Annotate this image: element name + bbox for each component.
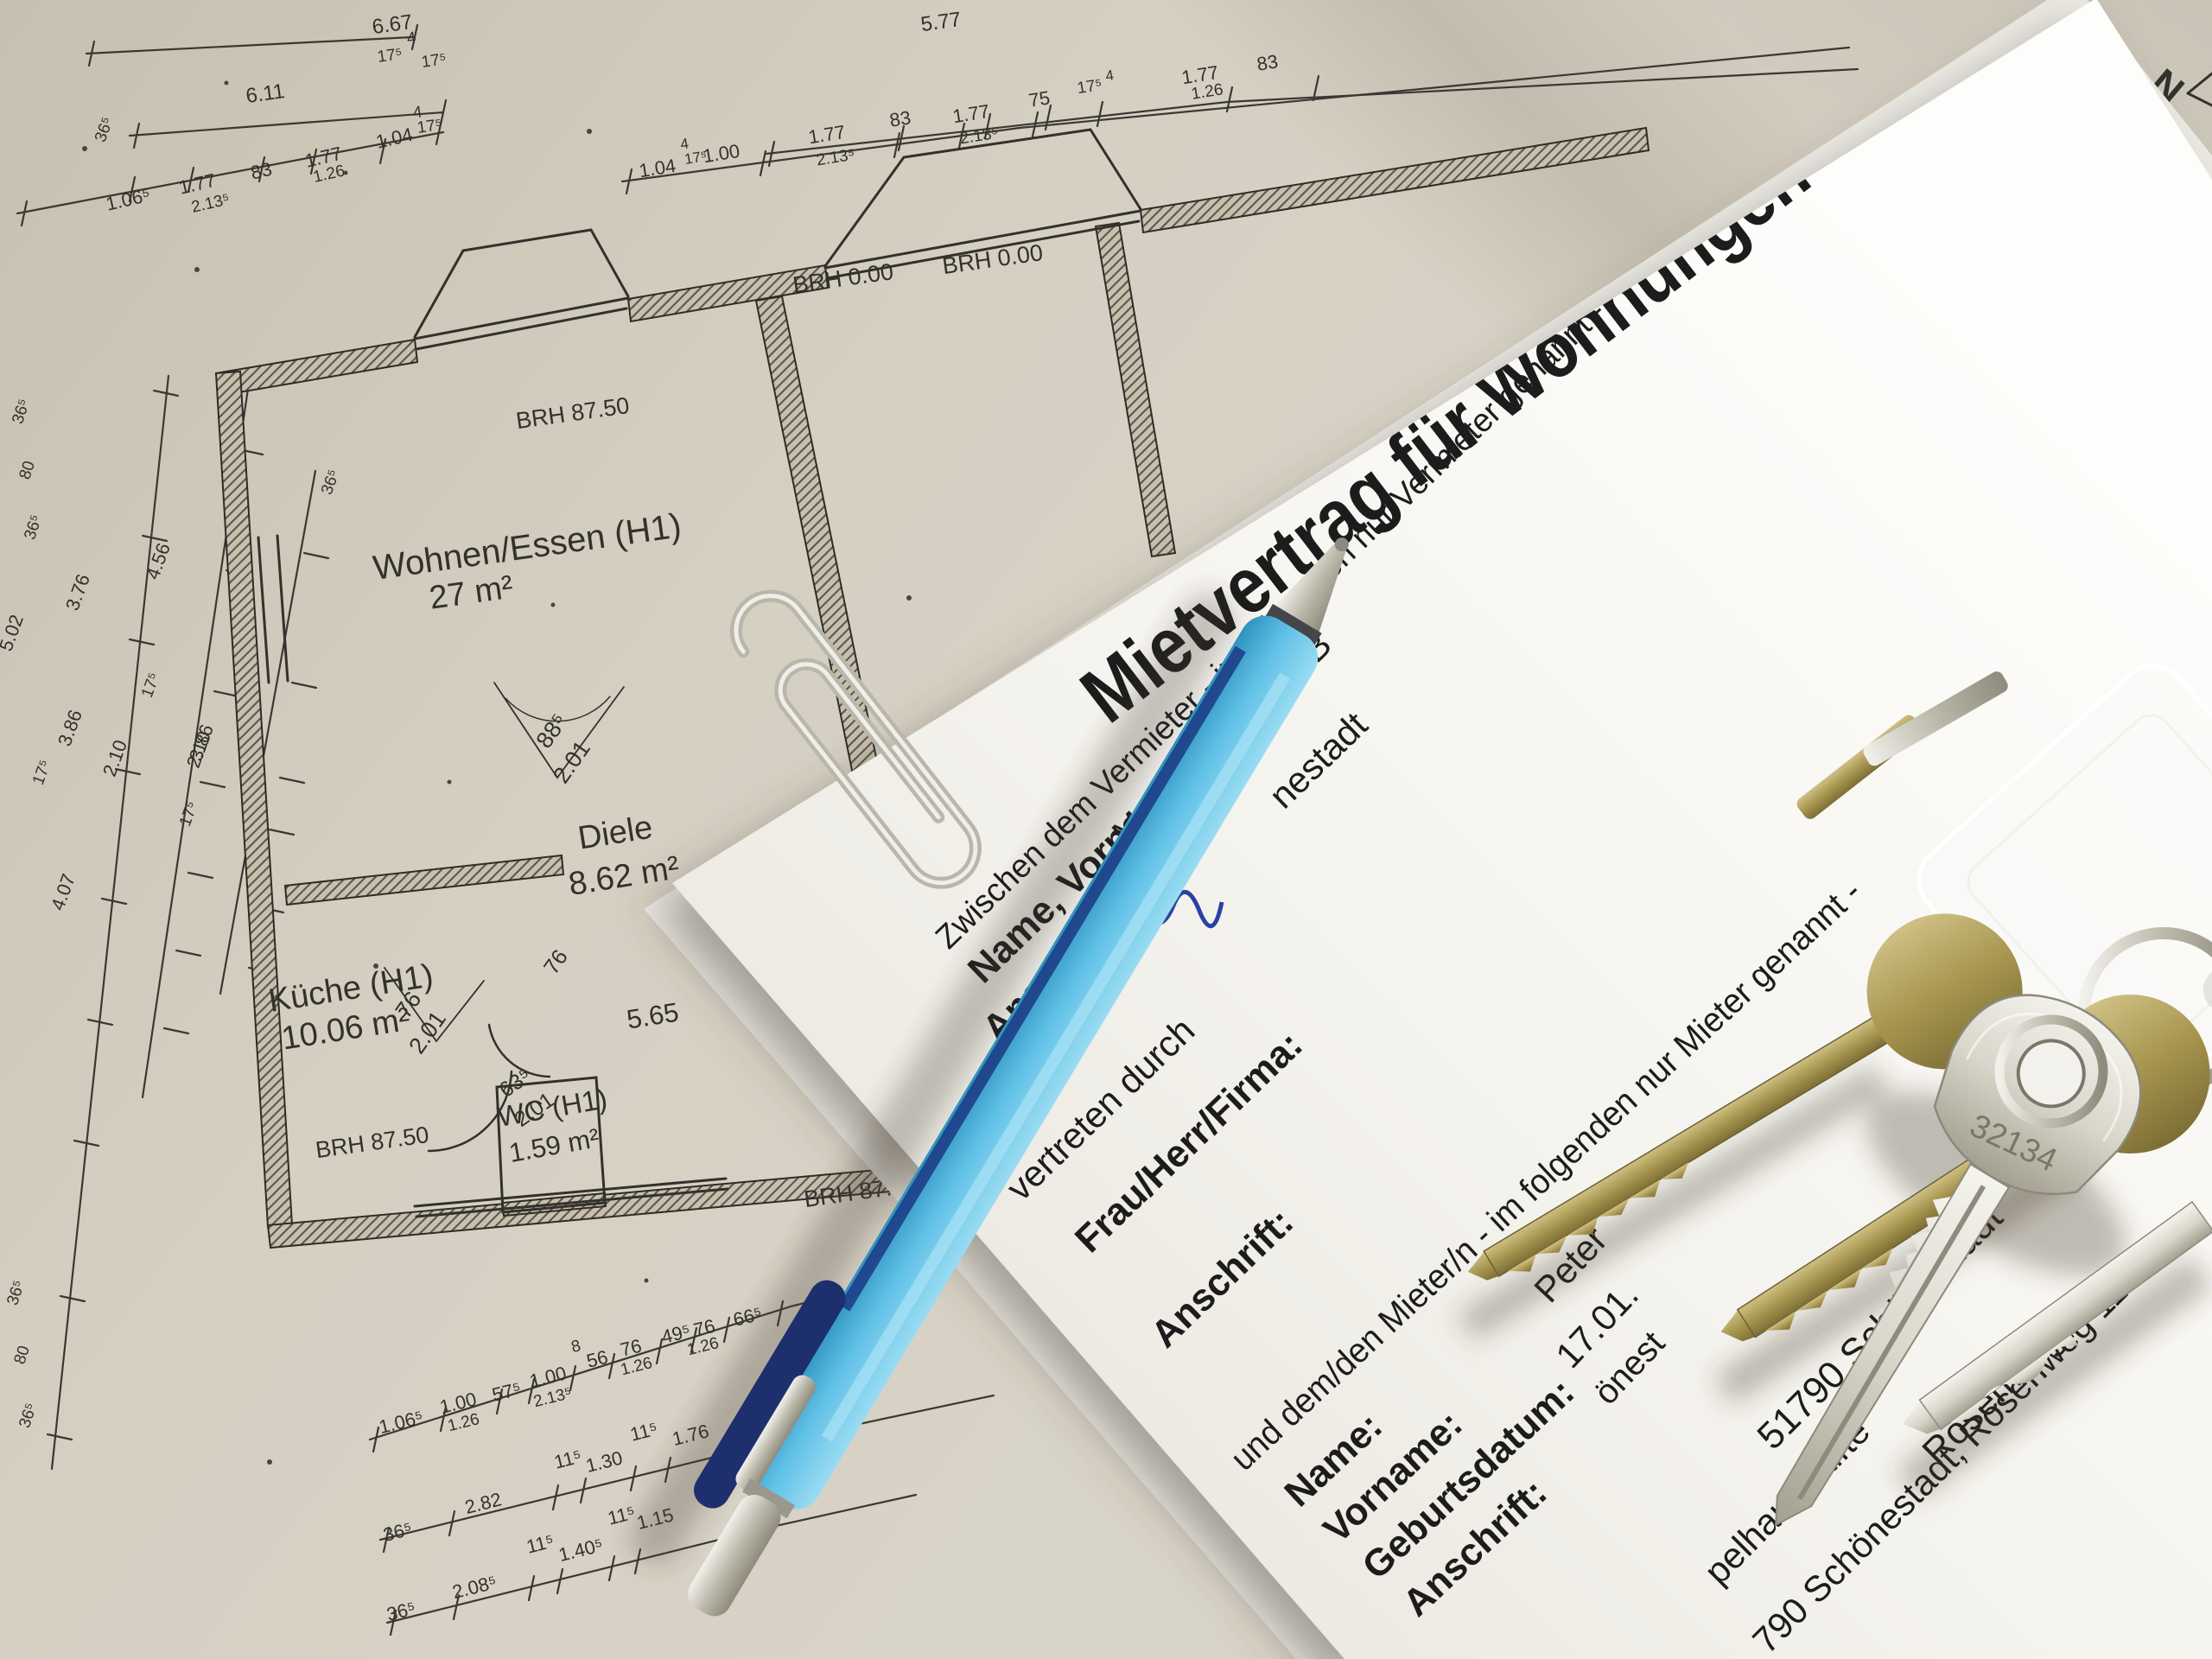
plan-label: 17⁵ xyxy=(420,50,448,72)
plan-label: 75 xyxy=(1027,86,1052,111)
plan-label: 17⁵ xyxy=(376,45,404,67)
scene-svg: 6.6717⁵417⁵6.1136⁵417⁵5.771.06⁵1.772.13⁵… xyxy=(0,0,2212,1659)
photo-scene: 6.6717⁵417⁵6.1136⁵417⁵5.771.06⁵1.772.13⁵… xyxy=(0,0,2212,1659)
plan-label: 17⁵ xyxy=(1076,76,1103,98)
plan-label: 17⁵ xyxy=(416,116,443,137)
plan-label: 83 xyxy=(1255,50,1280,75)
plan-label: 83 xyxy=(888,106,912,131)
